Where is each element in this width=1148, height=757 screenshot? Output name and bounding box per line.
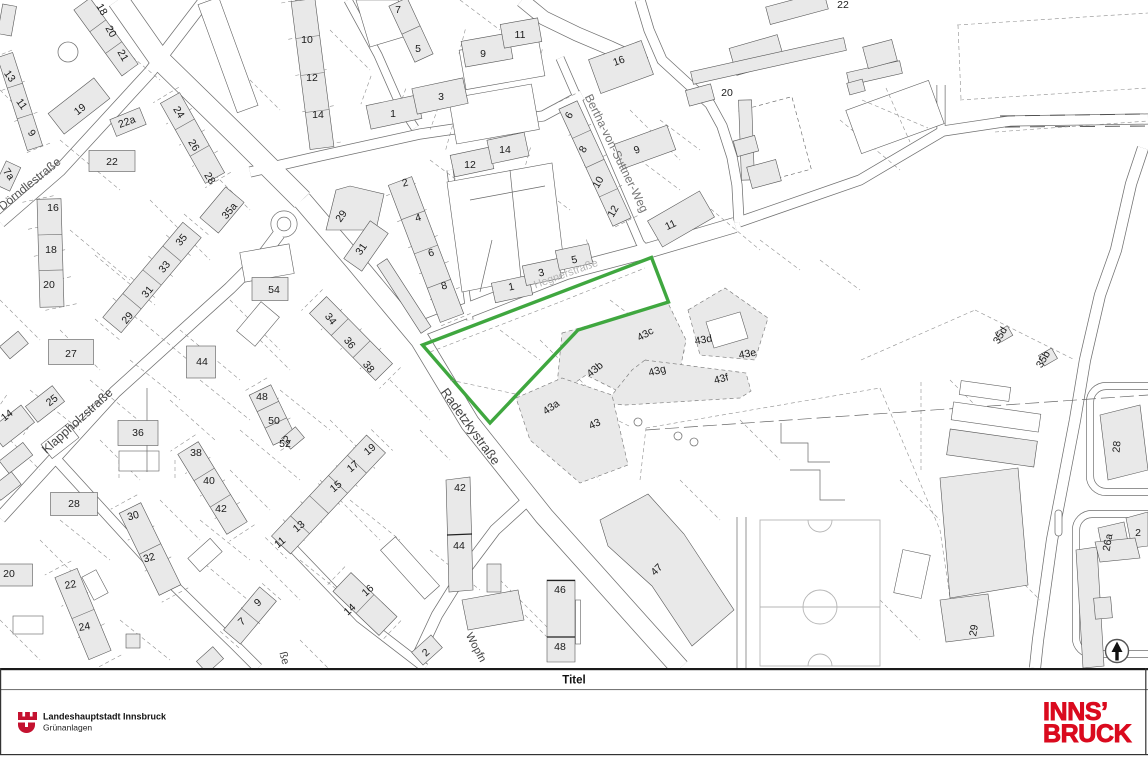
svg-text:50: 50 bbox=[268, 415, 280, 427]
svg-text:54: 54 bbox=[268, 284, 280, 296]
svg-text:44: 44 bbox=[196, 356, 208, 368]
svg-text:7: 7 bbox=[395, 4, 401, 16]
svg-text:18: 18 bbox=[45, 244, 57, 256]
svg-text:Landeshauptstadt Innsbruck: Landeshauptstadt Innsbruck bbox=[43, 712, 167, 722]
svg-text:5: 5 bbox=[415, 43, 421, 55]
svg-text:2: 2 bbox=[1135, 527, 1141, 539]
svg-text:40: 40 bbox=[203, 475, 215, 487]
svg-text:3: 3 bbox=[438, 91, 444, 103]
svg-text:16: 16 bbox=[47, 202, 59, 214]
svg-text:42: 42 bbox=[215, 503, 227, 515]
svg-text:48: 48 bbox=[256, 391, 268, 403]
svg-text:46: 46 bbox=[554, 584, 566, 596]
svg-text:44: 44 bbox=[453, 540, 465, 552]
svg-text:14: 14 bbox=[312, 109, 324, 121]
svg-text:12: 12 bbox=[464, 159, 476, 171]
svg-text:22: 22 bbox=[64, 578, 78, 592]
svg-text:12: 12 bbox=[306, 72, 318, 84]
svg-text:28: 28 bbox=[68, 498, 80, 510]
svg-text:Grünanlagen: Grünanlagen bbox=[43, 723, 92, 733]
svg-text:38: 38 bbox=[190, 447, 202, 459]
svg-text:1: 1 bbox=[390, 108, 396, 120]
svg-text:36: 36 bbox=[132, 427, 144, 439]
svg-text:11: 11 bbox=[515, 29, 526, 41]
svg-text:48: 48 bbox=[554, 641, 566, 653]
svg-text:20: 20 bbox=[721, 87, 733, 99]
svg-text:Titel: Titel bbox=[562, 675, 585, 687]
svg-text:10: 10 bbox=[301, 34, 313, 46]
svg-text:27: 27 bbox=[65, 348, 77, 360]
svg-text:20: 20 bbox=[3, 568, 15, 580]
svg-text:29: 29 bbox=[967, 624, 981, 638]
svg-text:28: 28 bbox=[1111, 440, 1124, 453]
svg-text:BRUCK: BRUCK bbox=[1043, 720, 1132, 748]
svg-text:14: 14 bbox=[499, 144, 511, 156]
svg-text:22: 22 bbox=[106, 156, 118, 168]
svg-text:20: 20 bbox=[43, 279, 55, 291]
svg-text:22: 22 bbox=[837, 0, 849, 11]
svg-text:24: 24 bbox=[78, 620, 92, 634]
svg-text:42: 42 bbox=[454, 482, 466, 494]
svg-text:9: 9 bbox=[480, 48, 486, 60]
